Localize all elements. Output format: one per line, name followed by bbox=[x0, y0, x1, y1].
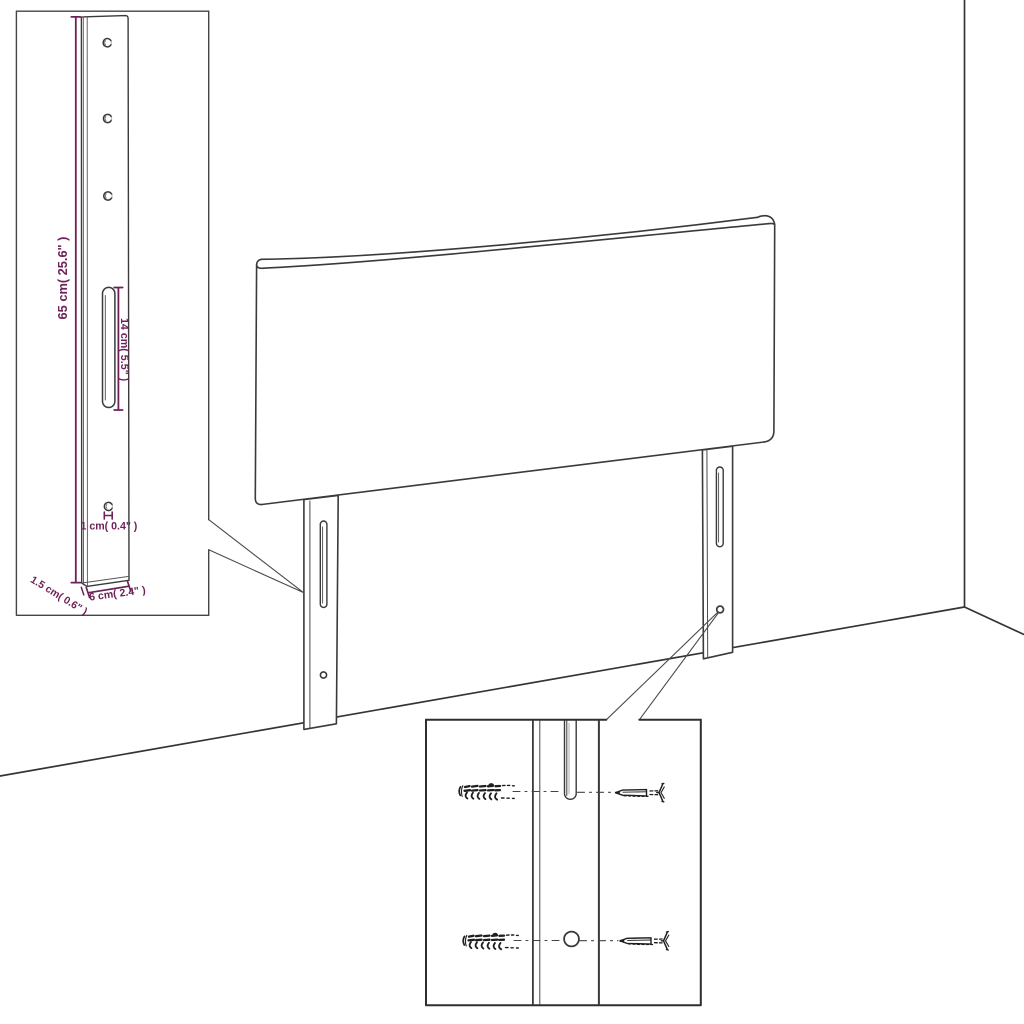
svg-text:65 cm( 25.6" ): 65 cm( 25.6" ) bbox=[55, 237, 70, 320]
svg-text:14 cm( 5.5" ): 14 cm( 5.5" ) bbox=[118, 318, 130, 382]
svg-text:1 cm( 0.4" ): 1 cm( 0.4" ) bbox=[81, 521, 138, 533]
